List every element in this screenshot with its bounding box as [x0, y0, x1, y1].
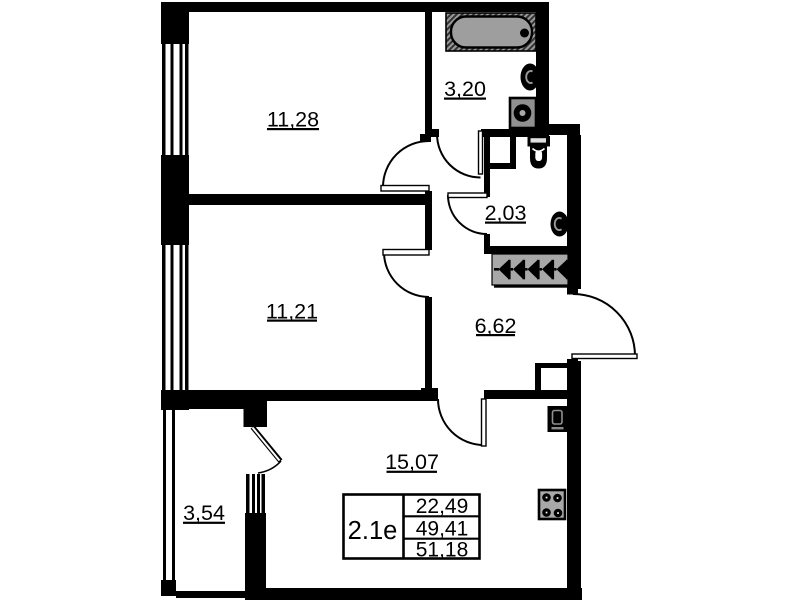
svg-text:15,07: 15,07: [385, 450, 439, 474]
svg-text:2.1e: 2.1e: [348, 517, 398, 545]
svg-text:51,18: 51,18: [416, 539, 469, 562]
svg-text:3,20: 3,20: [444, 77, 486, 101]
svg-text:2,03: 2,03: [485, 201, 527, 225]
svg-text:22,49: 22,49: [416, 495, 469, 518]
svg-text:11,28: 11,28: [267, 108, 319, 132]
svg-text:49,41: 49,41: [416, 518, 469, 541]
svg-text:3,54: 3,54: [183, 501, 225, 525]
